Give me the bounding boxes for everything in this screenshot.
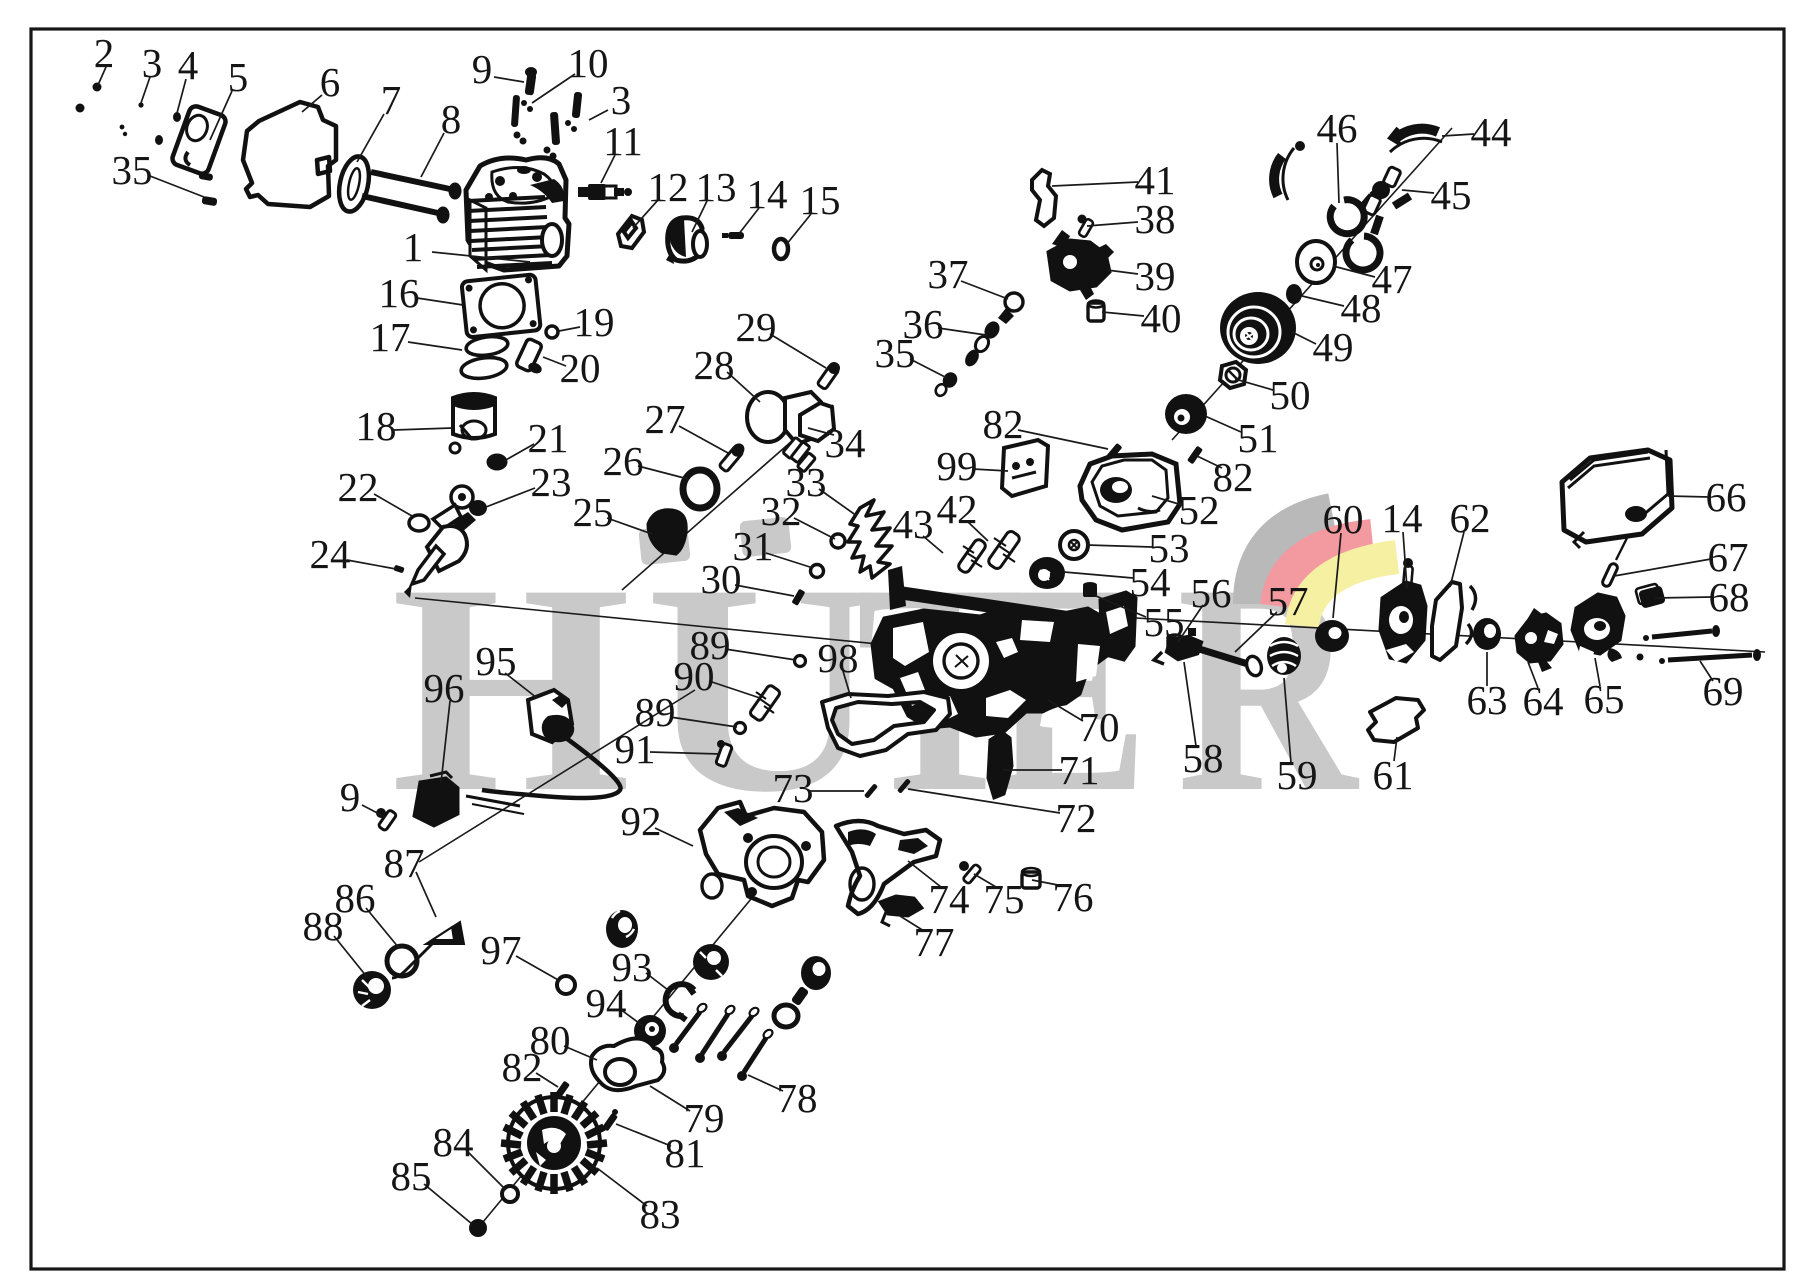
svg-text:10: 10 xyxy=(568,40,609,86)
svg-text:21: 21 xyxy=(528,415,569,461)
svg-text:14: 14 xyxy=(747,171,788,217)
svg-text:37: 37 xyxy=(928,251,969,297)
svg-text:77: 77 xyxy=(914,919,955,965)
svg-text:85: 85 xyxy=(391,1153,432,1199)
svg-text:73: 73 xyxy=(773,765,814,811)
svg-text:98: 98 xyxy=(818,635,859,681)
svg-text:9: 9 xyxy=(340,774,361,820)
svg-text:14: 14 xyxy=(1382,495,1423,541)
svg-text:84: 84 xyxy=(433,1119,474,1165)
svg-text:82: 82 xyxy=(983,401,1024,447)
svg-text:60: 60 xyxy=(1323,496,1364,542)
svg-text:27: 27 xyxy=(645,396,686,442)
svg-text:22: 22 xyxy=(338,464,379,510)
svg-text:99: 99 xyxy=(937,443,978,489)
svg-text:90: 90 xyxy=(674,653,715,699)
svg-text:12: 12 xyxy=(648,164,689,210)
svg-text:5: 5 xyxy=(228,54,249,100)
svg-text:72: 72 xyxy=(1056,795,1097,841)
svg-text:55: 55 xyxy=(1144,599,1185,645)
svg-text:51: 51 xyxy=(1238,415,1279,461)
svg-text:94: 94 xyxy=(586,980,627,1026)
svg-text:82: 82 xyxy=(502,1044,543,1090)
svg-text:6: 6 xyxy=(320,59,341,105)
svg-text:16: 16 xyxy=(379,270,420,316)
svg-text:18: 18 xyxy=(356,403,397,449)
svg-text:87: 87 xyxy=(384,840,425,886)
svg-text:45: 45 xyxy=(1431,172,1472,218)
svg-text:1: 1 xyxy=(403,224,424,270)
svg-text:96: 96 xyxy=(424,665,465,711)
svg-text:24: 24 xyxy=(310,531,351,577)
svg-text:2: 2 xyxy=(94,30,115,76)
svg-text:61: 61 xyxy=(1373,752,1414,798)
svg-text:76: 76 xyxy=(1053,874,1094,920)
svg-text:30: 30 xyxy=(701,556,742,602)
svg-text:68: 68 xyxy=(1709,574,1750,620)
svg-text:15: 15 xyxy=(800,177,841,223)
svg-text:28: 28 xyxy=(694,342,735,388)
svg-text:17: 17 xyxy=(370,314,411,360)
svg-text:26: 26 xyxy=(603,438,644,484)
svg-text:46: 46 xyxy=(1317,105,1358,151)
svg-text:40: 40 xyxy=(1141,295,1182,341)
svg-text:91: 91 xyxy=(615,726,656,772)
svg-text:44: 44 xyxy=(1471,109,1512,155)
svg-text:58: 58 xyxy=(1183,735,1224,781)
svg-text:35: 35 xyxy=(112,147,153,193)
svg-text:29: 29 xyxy=(736,304,777,350)
svg-text:3: 3 xyxy=(611,77,632,123)
svg-text:59: 59 xyxy=(1277,752,1318,798)
svg-text:88: 88 xyxy=(303,903,344,949)
svg-text:66: 66 xyxy=(1706,474,1747,520)
svg-text:4: 4 xyxy=(178,42,199,88)
svg-text:42: 42 xyxy=(937,486,978,532)
svg-text:74: 74 xyxy=(929,876,970,922)
svg-text:75: 75 xyxy=(984,876,1025,922)
svg-text:25: 25 xyxy=(573,489,614,535)
svg-text:49: 49 xyxy=(1313,324,1354,370)
svg-text:71: 71 xyxy=(1059,747,1100,793)
svg-text:62: 62 xyxy=(1450,495,1491,541)
svg-text:65: 65 xyxy=(1584,676,1625,722)
svg-text:69: 69 xyxy=(1703,668,1744,714)
svg-text:20: 20 xyxy=(560,345,601,391)
svg-text:41: 41 xyxy=(1135,157,1176,203)
svg-text:56: 56 xyxy=(1191,570,1232,616)
svg-text:97: 97 xyxy=(481,927,522,973)
svg-text:34: 34 xyxy=(825,420,866,466)
svg-text:64: 64 xyxy=(1523,678,1564,724)
svg-text:39: 39 xyxy=(1135,253,1176,299)
svg-text:83: 83 xyxy=(640,1191,681,1237)
svg-text:7: 7 xyxy=(381,77,402,123)
svg-text:57: 57 xyxy=(1268,578,1309,624)
svg-text:92: 92 xyxy=(621,798,662,844)
svg-text:78: 78 xyxy=(777,1075,818,1121)
svg-text:70: 70 xyxy=(1079,704,1120,750)
svg-text:50: 50 xyxy=(1270,372,1311,418)
svg-text:11: 11 xyxy=(603,118,642,164)
svg-text:35: 35 xyxy=(875,330,916,376)
svg-text:13: 13 xyxy=(696,164,737,210)
svg-text:8: 8 xyxy=(441,96,462,142)
svg-text:9: 9 xyxy=(472,46,493,92)
svg-text:43: 43 xyxy=(893,501,934,547)
svg-text:23: 23 xyxy=(531,459,572,505)
svg-text:95: 95 xyxy=(476,638,517,684)
svg-text:79: 79 xyxy=(684,1095,725,1141)
svg-text:3: 3 xyxy=(142,40,163,86)
svg-text:63: 63 xyxy=(1467,677,1508,723)
svg-text:19: 19 xyxy=(574,299,615,345)
